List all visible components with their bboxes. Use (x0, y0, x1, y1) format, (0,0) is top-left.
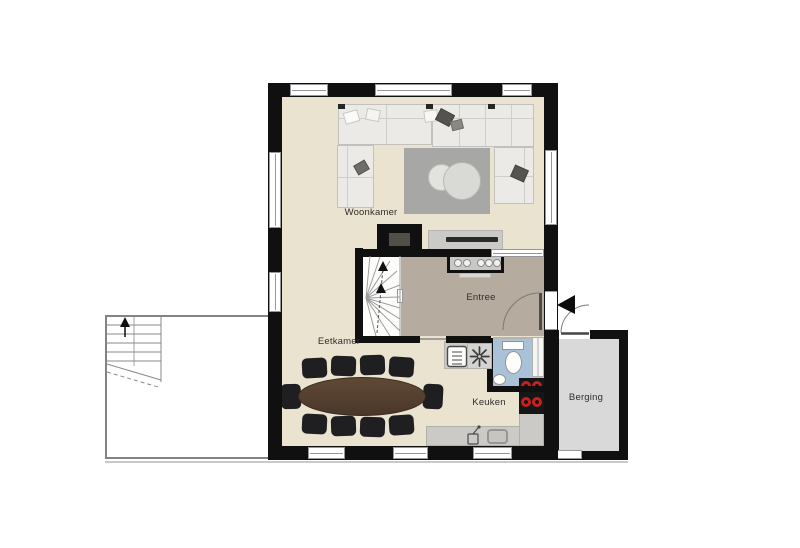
wall-toilet-bottom (487, 386, 544, 392)
chair (388, 356, 414, 378)
sink-basin (487, 429, 508, 444)
cooktop (519, 378, 544, 414)
chair (331, 416, 357, 437)
sofa-seam (386, 105, 387, 144)
chair (301, 413, 327, 434)
sofa-corner-mark (488, 104, 495, 109)
terrace-outline (105, 315, 270, 459)
wall-right (544, 83, 558, 460)
room-label-keuken: Keuken (472, 397, 505, 408)
window-mullion (275, 274, 276, 310)
window-mullion (377, 90, 450, 91)
counter-right (519, 412, 544, 446)
window (269, 272, 281, 312)
chair (331, 356, 357, 377)
stair-newel (397, 289, 403, 303)
floorplan-canvas: Woonkamer Eetkamer Entree Keuken Berging (0, 0, 800, 548)
window-mullion (310, 453, 343, 454)
sofa-corner-mark (426, 104, 433, 109)
window (473, 447, 512, 459)
window-mullion (475, 453, 510, 454)
window (545, 150, 557, 225)
sofa-seam (338, 177, 373, 178)
wall-entree-top (355, 249, 491, 257)
coffee-table-large (443, 162, 481, 200)
niche-knob (485, 259, 493, 267)
window-mullion (292, 90, 326, 91)
sofa-seam (347, 146, 348, 207)
window (393, 447, 428, 459)
room-label-woonkamer: Woonkamer (345, 207, 398, 218)
chair (360, 355, 386, 376)
window-mullion (551, 152, 552, 223)
berging-door-opening (559, 330, 590, 339)
window-mullion (493, 253, 542, 254)
sofa-seam (511, 105, 512, 146)
ground-line (105, 461, 628, 463)
chair (388, 414, 414, 436)
window (269, 152, 281, 228)
tall-cabinet (532, 337, 544, 377)
berging-sill (556, 450, 582, 459)
chimney-inner (389, 233, 410, 246)
staircase-area (363, 256, 401, 336)
pillow (365, 108, 381, 122)
room-label-entree: Entree (466, 292, 495, 303)
toilet-bowl (505, 351, 522, 374)
window (290, 84, 328, 96)
burner (521, 397, 531, 407)
burner (532, 397, 542, 407)
room-label-berging: Berging (569, 392, 603, 403)
wall-toilet-left (487, 338, 493, 392)
chair (360, 417, 386, 438)
toilet-tank (502, 341, 524, 350)
niche-knob (477, 259, 485, 267)
wall-entree-bottom-left (357, 336, 420, 343)
room-label-eetkamer: Eetkamer (318, 336, 360, 347)
utility-area (444, 341, 493, 369)
sofa-seam (485, 105, 486, 146)
threshold-entree-keuken (420, 338, 446, 340)
tv-dark-bar (446, 237, 498, 242)
dining-table (298, 377, 426, 416)
window-mullion (275, 154, 276, 226)
window (375, 84, 452, 96)
window (308, 447, 345, 459)
window-mullion (504, 90, 530, 91)
chair (301, 357, 327, 378)
sofa-corner-mark (338, 104, 345, 109)
berging-door-arc (561, 305, 589, 333)
toilet-sink (493, 374, 506, 385)
niche-knob (493, 259, 501, 267)
wall-entree-bottom-right (446, 336, 491, 343)
niche-knob (463, 259, 471, 267)
niche-knob (454, 259, 462, 267)
chaise-left (337, 145, 374, 208)
interior-window (491, 249, 544, 257)
window (502, 84, 532, 96)
window-mullion (395, 453, 426, 454)
entrance-arrow-icon (557, 295, 575, 314)
niche-step (459, 273, 491, 278)
front-door-opening (545, 291, 557, 330)
wall-entree-left (355, 248, 363, 343)
front-door-leaf (539, 293, 542, 330)
